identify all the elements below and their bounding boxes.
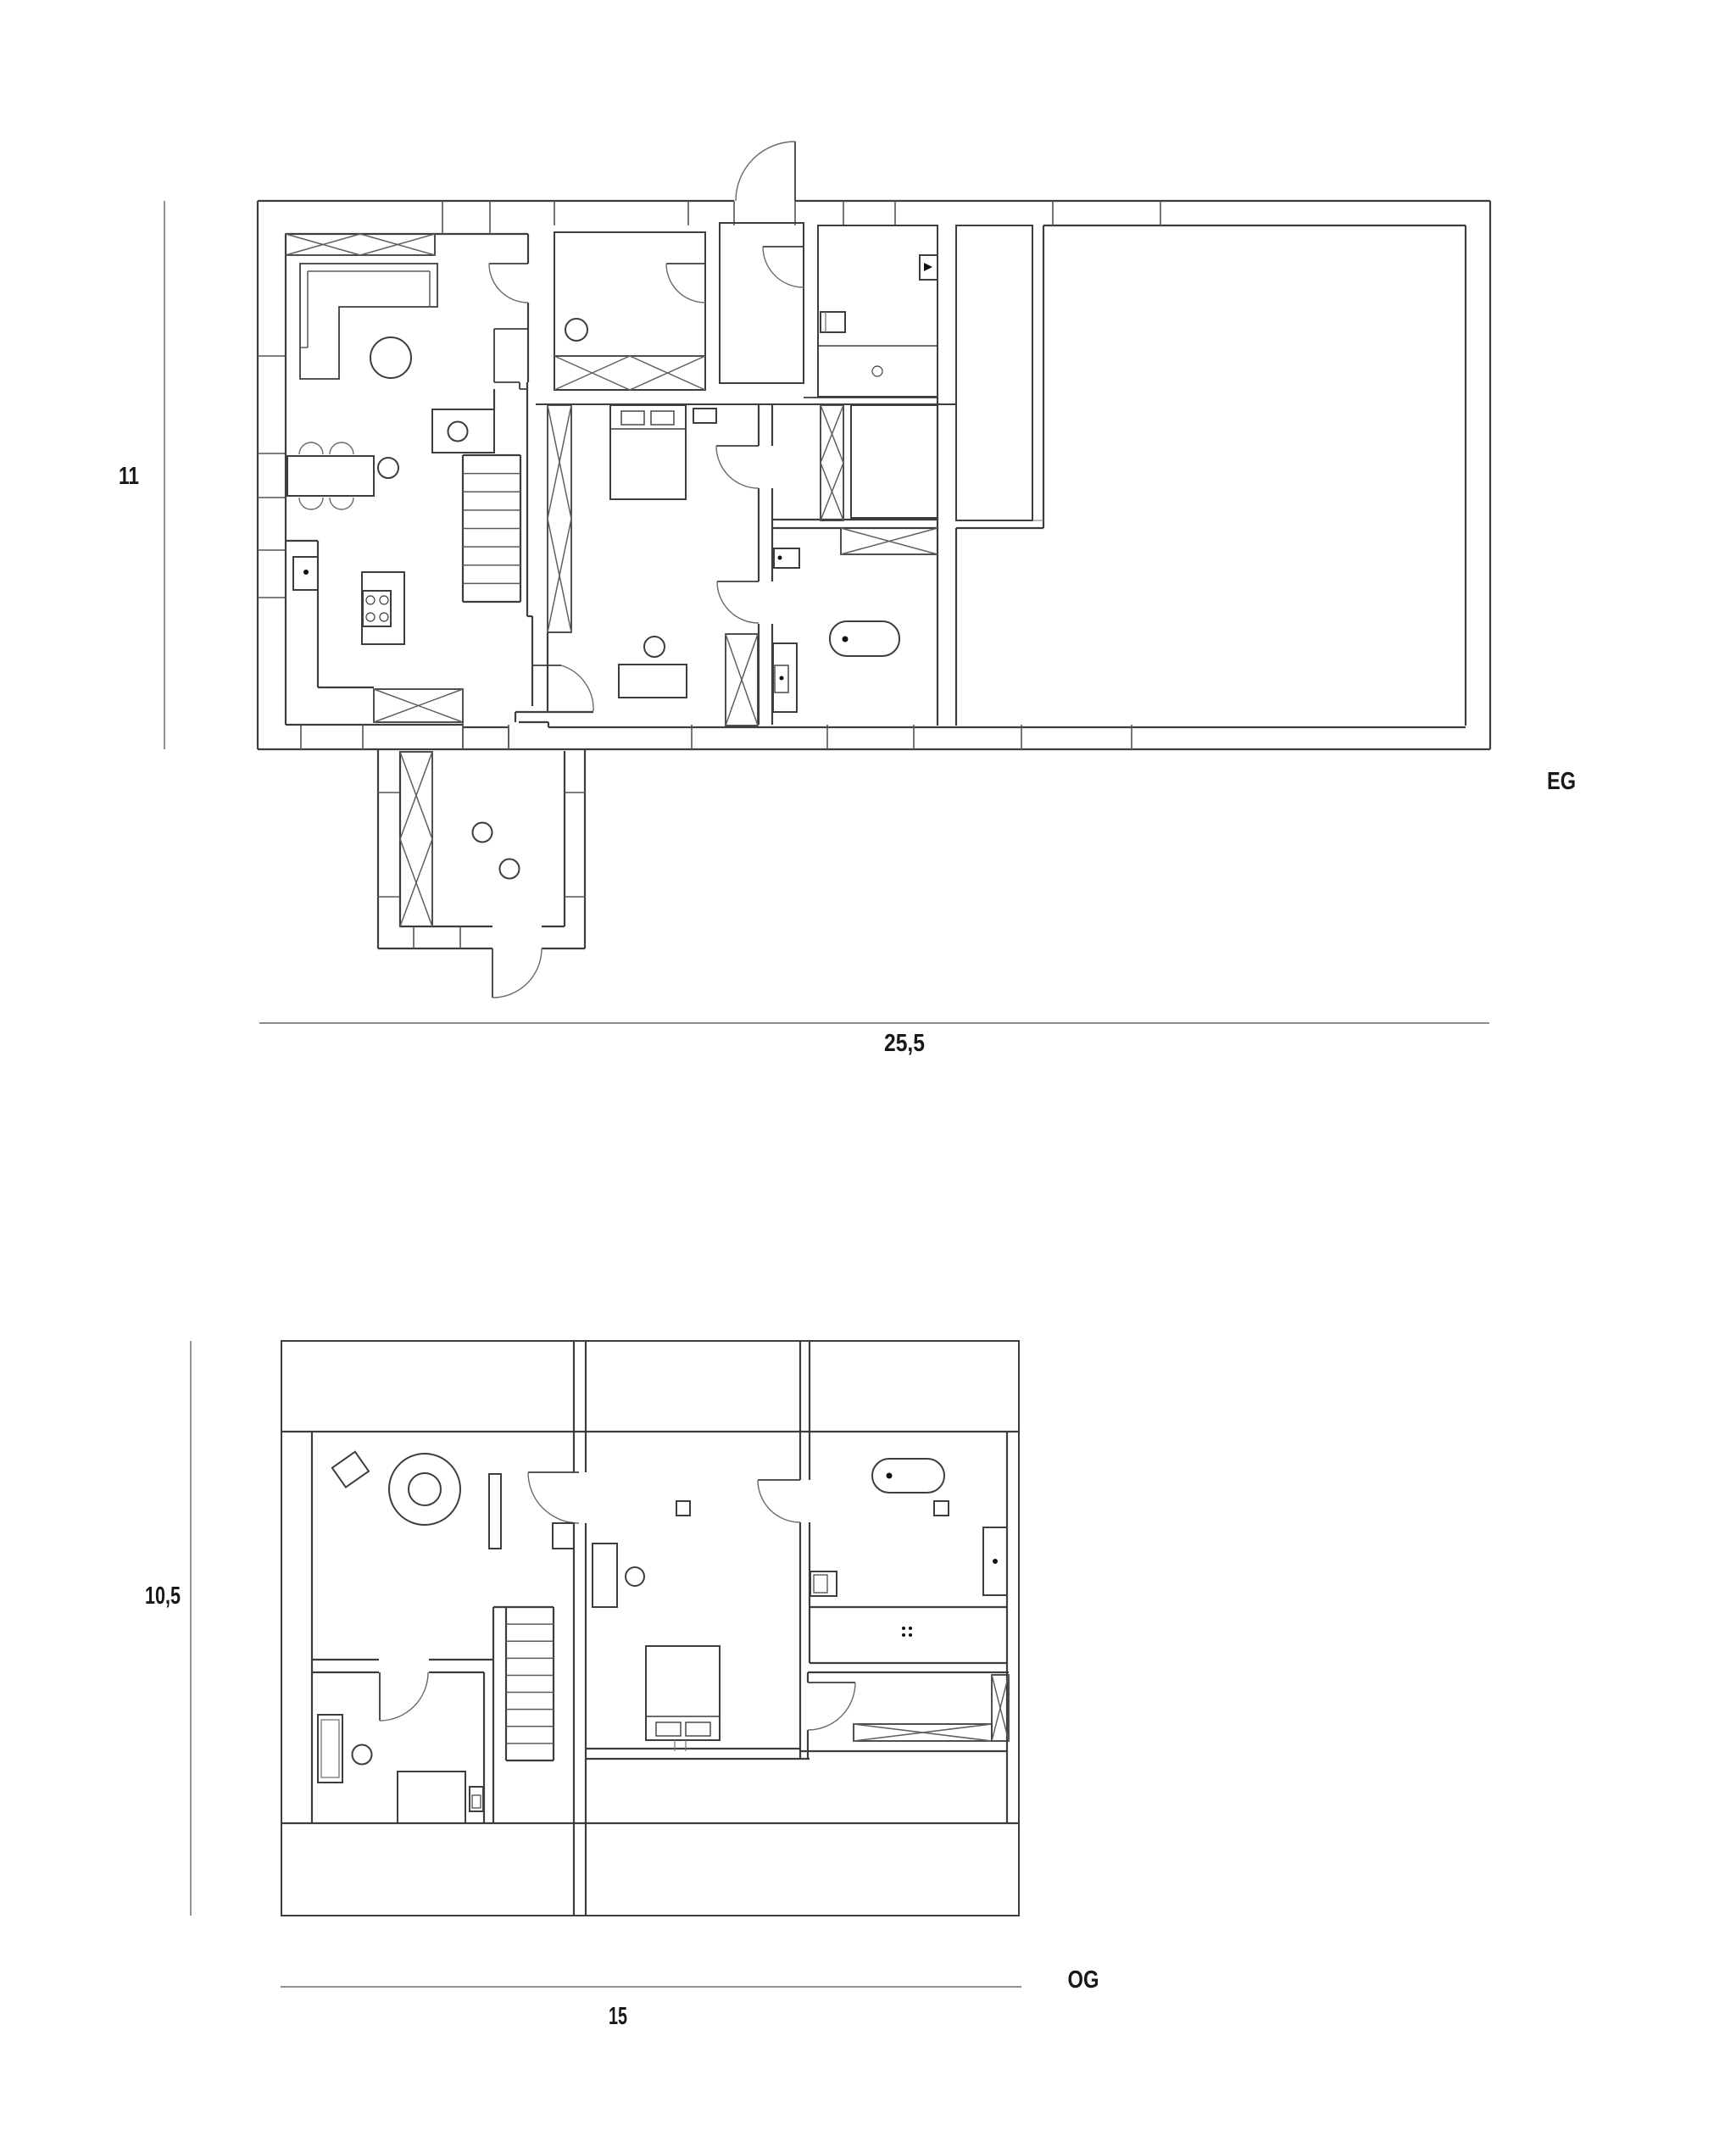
svg-text:11: 11 xyxy=(119,463,139,490)
svg-text:OG: OG xyxy=(1068,1966,1099,1994)
svg-text:15: 15 xyxy=(609,2003,627,2030)
svg-text:EG: EG xyxy=(1547,768,1576,795)
svg-text:10,5: 10,5 xyxy=(145,1582,181,1610)
svg-text:25,5: 25,5 xyxy=(884,1030,925,1057)
